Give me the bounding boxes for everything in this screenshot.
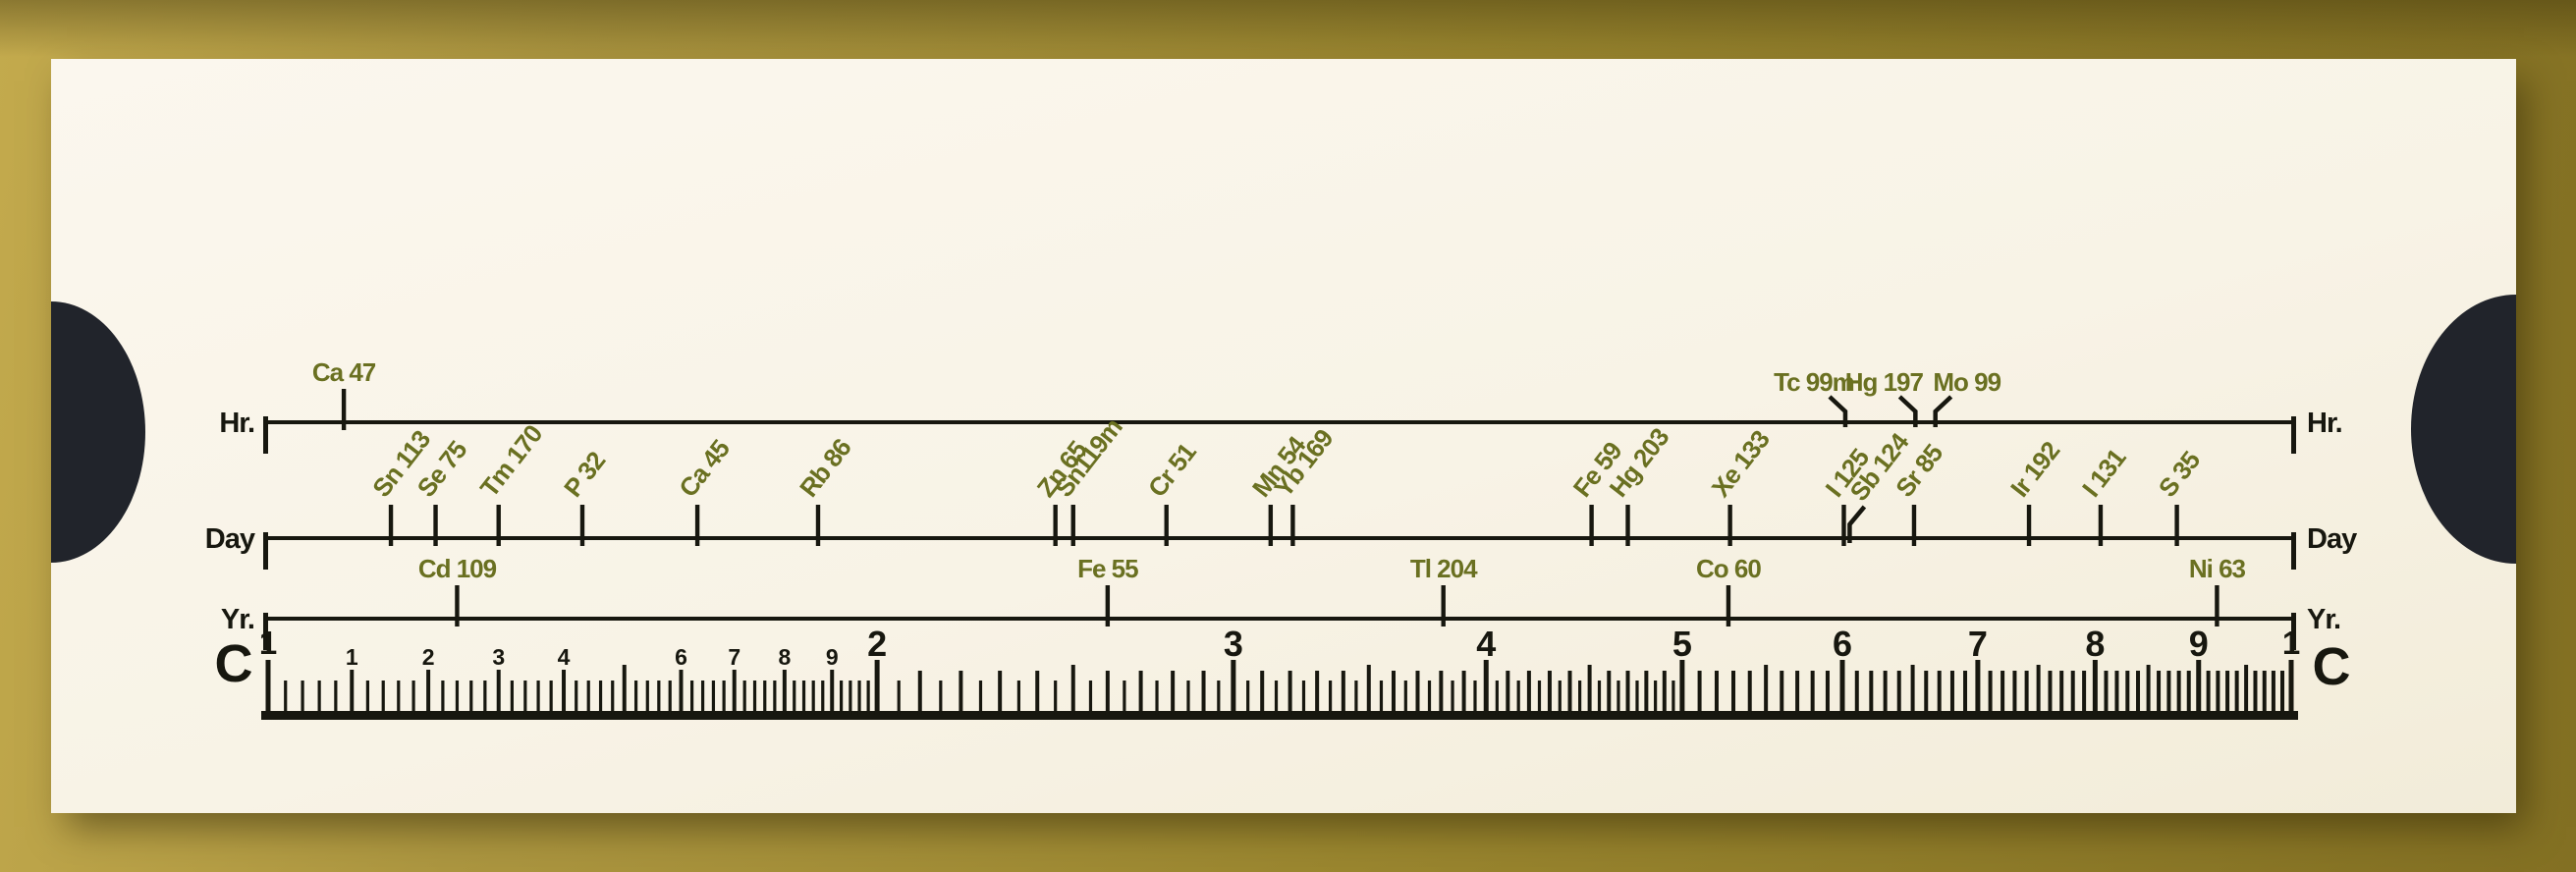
c-scale-tenth-tick [1884,671,1888,715]
c-scale-tenth-tick [2177,671,2181,715]
isotope-marker [455,585,459,627]
isotope-marker [1841,505,1845,546]
c-scale-tenth-tick [1811,671,1815,715]
c-scale-tenth-tick [1855,671,1859,715]
isotope-marker [2174,505,2178,546]
c-scale-minor-tick [812,681,815,715]
isotope-marker [2099,505,2103,546]
c-scale-minor-tick [575,681,577,715]
isotope-label: Fe 55 [1077,554,1138,583]
c-scale-tenth-tick [1506,671,1509,715]
hr-scale-right-end-tick [2291,416,2296,454]
c-scale-tenth-tick [2104,671,2108,715]
c-scale-minor-tick [1635,681,1638,715]
c-scale-tenth-tick [2166,671,2170,715]
isotope-label: Xe 133 [1706,425,1776,503]
c-scale-minor-tick [397,681,400,715]
isotope-marker [1625,505,1629,546]
c-scale-minor-tick [646,681,649,715]
c-scale-tenth-tick [1924,671,1928,715]
c-scale-number: 3 [1224,624,1243,664]
isotope-label: I 131 [2076,443,2131,503]
c-scale-minor-tick [599,681,602,715]
c-scale-half-tick [2244,665,2248,715]
c-scale-tenth-tick [2207,671,2211,715]
c-scale-tenth-tick [1826,671,1830,715]
c-scale-tenth-tick [1663,671,1667,715]
c-scale-minor-tick [366,681,369,715]
day-scale-right-label: Day [2307,523,2357,555]
c-scale-tenth-tick [733,670,737,715]
c-scale-minor-tick [301,681,303,715]
c-scale-tenth-tick [2025,671,2029,715]
c-scale-end-number: 1 [2282,625,2300,661]
c-scale-minor-tick [1217,681,1220,715]
c-scale-tenth-tick [2263,671,2267,715]
c-scale-tenth-tick [2187,671,2191,715]
c-scale-tenth-tick [1342,671,1345,715]
c-scale-minor-tick [1496,681,1499,715]
c-scale-minor-tick [723,681,726,715]
isotope-label: Cd 109 [418,554,497,583]
yr-scale-right-label: Yr. [2307,604,2340,635]
c-scale-minor-tick [712,681,715,715]
c-scale-tenth-tick [1548,671,1552,715]
slide-chart-card: Hr.Hr.Ca 47Tc 99mHg 197Mo 99DayDaySn 113… [51,59,2516,813]
c-scale-minor-tick [523,681,526,715]
c-scale-tenth-tick [1963,671,1967,715]
c-scale-tenth-tick [783,670,787,715]
isotope-label: Ir 192 [2004,436,2065,503]
c-scale-decimal-number: 3 [492,644,505,670]
isotope-marker [1912,505,1916,546]
photo-background: Hr.Hr.Ca 47Tc 99mHg 197Mo 99DayDaySn 113… [0,0,2576,872]
c-scale-tenth-tick [2225,671,2229,715]
c-scale-major-tick [1484,660,1489,715]
isotope-marker [433,505,437,546]
c-scale-decimal-number: 6 [675,644,687,670]
c-scale-minor-tick [456,681,459,715]
c-scale-right-label: C [2313,637,2351,696]
c-scale-major-tick [1975,660,1980,715]
c-scale-minor-tick [536,681,539,715]
day-scale-left-label: Day [205,523,255,555]
c-scale-minor-tick [1123,681,1125,715]
c-scale-tenth-tick [1139,671,1143,715]
c-scale-decimal-number: 8 [778,644,791,670]
c-scale-tenth-tick [1106,671,1110,715]
c-scale-number: 2 [867,624,887,664]
c-scale-tenth-tick [1607,671,1611,715]
isotope-marker [1071,505,1075,546]
c-scale-number: 4 [1476,624,1496,664]
c-scale-minor-tick [753,681,756,715]
c-scale-tenth-tick [2012,671,2016,715]
c-scale-tenth-tick [2082,671,2086,715]
c-scale-tenth-tick [1439,671,1443,715]
c-scale-tenth-tick [1392,671,1396,715]
c-scale-minor-tick [550,681,553,715]
c-scale-tenth-tick [2235,671,2239,715]
c-scale-minor-tick [793,681,795,715]
c-scale-major-tick [1231,660,1235,715]
isotope-marker [1589,505,1593,546]
c-scale-tenth-tick [959,671,962,715]
c-scale-tenth-tick [562,670,566,715]
c-scale-baseline [261,711,2298,720]
c-scale-tenth-tick [2280,671,2284,715]
isotope-label: Ni 63 [2189,554,2246,583]
c-scale-minor-tick [657,681,660,715]
c-scale-number: 6 [1833,624,1852,664]
c-scale-minor-tick [1654,681,1657,715]
scales-face: Hr.Hr.Ca 47Tc 99mHg 197Mo 99DayDaySn 113… [51,59,2516,813]
c-scale-minor-tick [669,681,672,715]
c-scale-minor-tick [1017,681,1020,715]
isotope-marker [2215,585,2219,627]
c-scale-minor-tick [1054,681,1057,715]
c-scale-minor-tick [867,681,870,715]
c-scale-minor-tick [1302,681,1305,715]
c-scale-minor-tick [1155,681,1158,715]
c-scale-tenth-tick [2216,671,2220,715]
hr-scale-line [263,420,2296,424]
c-scale-tenth-tick [1171,671,1175,715]
isotope-marker [1726,585,1730,627]
c-scale-tenth-tick [2253,671,2257,715]
c-scale-tenth-tick [426,670,430,715]
c-scale-minor-tick [469,681,472,715]
c-scale-minor-tick [1578,681,1581,715]
c-scale-half-tick [623,665,627,715]
c-scale-minor-tick [690,681,693,715]
c-scale-major-tick [2289,660,2294,715]
c-scale-number: 9 [2189,624,2209,664]
c-scale-major-tick [875,660,880,715]
c-scale-minor-tick [1617,681,1619,715]
isotope-label: Cr 51 [1142,437,1202,502]
c-scale-major-tick [1679,660,1684,715]
c-scale-major-tick [1839,660,1844,715]
c-scale-tenth-tick [1260,671,1264,715]
isotope-marker [816,505,820,546]
c-scale-tenth-tick [1698,671,1702,715]
c-scale-minor-tick [939,681,942,715]
c-scale-tenth-tick [2125,671,2129,715]
c-scale-major-tick [2196,660,2201,715]
c-scale-tenth-tick [1950,671,1954,715]
c-scale-left-label: C [215,634,253,693]
c-scale-minor-tick [587,681,590,715]
c-scale-half-tick [2147,665,2151,715]
c-scale-minor-tick [1672,681,1674,715]
c-scale-half-tick [1071,665,1075,715]
c-scale-tenth-tick [1715,671,1719,715]
c-scale-tenth-tick [2059,671,2063,715]
c-scale-tenth-tick [1415,671,1419,715]
c-scale-minor-tick [849,681,851,715]
c-scale-tenth-tick [350,670,354,715]
c-scale-minor-tick [511,681,514,715]
c-scale-minor-tick [483,681,486,715]
c-scale-minor-tick [284,681,287,715]
c-scale-decimal-number: 2 [422,644,435,670]
c-scale-tenth-tick [1897,671,1901,715]
c-scale-tenth-tick [1780,671,1783,715]
c-scale-minor-tick [763,681,766,715]
c-scale-tenth-tick [1202,671,1206,715]
c-scale-minor-tick [611,681,614,715]
isotope-marker [695,505,699,546]
isotope-marker [1290,505,1294,546]
isotope-label: Tc 99m [1774,367,1854,397]
c-scale-minor-tick [1538,681,1541,715]
c-scale-tenth-tick [830,670,834,715]
isotope-label: Co 60 [1696,554,1761,583]
day-scale-left-end-tick [263,532,268,570]
c-scale-tenth-tick [918,671,922,715]
yr-scale-left-label: Yr. [221,604,254,635]
c-scale-minor-tick [1186,681,1189,715]
c-scale-minor-tick [773,681,776,715]
c-scale-minor-tick [1598,681,1601,715]
c-scale-minor-tick [1517,681,1520,715]
c-scale-minor-tick [334,681,337,715]
c-scale-half-tick [2037,665,2041,715]
c-scale-minor-tick [1246,681,1249,715]
c-scale-tenth-tick [1644,671,1648,715]
c-scale-minor-tick [1404,681,1407,715]
c-scale-tenth-tick [1527,671,1531,715]
c-scale-minor-tick [1329,681,1332,715]
isotope-marker [1053,505,1057,546]
hr-scale-right-label: Hr. [2307,408,2342,439]
isotope-label: Tm 170 [474,419,548,503]
c-scale-minor-tick [1451,681,1453,715]
c-scale-decimal-number: 4 [558,644,571,670]
c-scale-minor-tick [840,681,843,715]
c-scale-tenth-tick [1731,671,1735,715]
c-scale-end-number: 1 [259,625,277,661]
c-scale-minor-tick [802,681,805,715]
isotope-marker [389,505,393,546]
isotope-label: Tl 204 [1410,554,1478,583]
c-scale-tenth-tick [998,671,1002,715]
c-scale-tenth-tick [1869,671,1873,715]
c-scale-minor-tick [634,681,637,715]
day-scale-right-end-tick [2291,532,2296,570]
c-scale-tenth-tick [2136,671,2140,715]
c-scale-tenth-tick [2001,671,2004,715]
isotope-label: Rb 86 [794,433,856,503]
c-scale-half-tick [1911,665,1915,715]
isotope-label: Hg 197 [1845,367,1924,397]
isotope-marker [2027,505,2031,546]
c-scale-minor-tick [701,681,704,715]
c-scale-tenth-tick [1626,671,1630,715]
c-scale-half-tick [1764,665,1768,715]
isotope-marker [1442,585,1446,627]
c-scale-major-tick [266,660,271,715]
c-scale-minor-tick [411,681,414,715]
c-scale-tenth-tick [1989,671,1993,715]
c-scale-tenth-tick [1568,671,1572,715]
c-scale-minor-tick [441,681,444,715]
c-scale-minor-tick [1089,681,1092,715]
c-scale-tenth-tick [1748,671,1752,715]
c-scale-half-tick [1588,665,1592,715]
c-scale-tenth-tick [1795,671,1799,715]
day-scale-line [263,536,2296,540]
c-scale-tenth-tick [2114,671,2118,715]
c-scale-tenth-tick [2048,671,2052,715]
isotope-marker [1165,505,1169,546]
c-scale-minor-tick [382,681,385,715]
c-scale-major-tick [2093,660,2098,715]
c-scale-minor-tick [898,681,901,715]
c-scale-tenth-tick [1035,671,1039,715]
c-scale-minor-tick [821,681,824,715]
isotope-marker [1106,585,1110,627]
isotope-label: S 35 [2153,446,2206,503]
c-scale-minor-tick [979,681,982,715]
c-scale-minor-tick [318,681,321,715]
c-scale-minor-tick [857,681,860,715]
c-scale-minor-tick [1428,681,1431,715]
isotope-marker [1727,505,1731,546]
c-scale-minor-tick [1559,681,1562,715]
isotope-marker [497,505,501,546]
c-scale-decimal-number: 1 [346,644,358,670]
c-scale-tenth-tick [1315,671,1319,715]
c-scale-minor-tick [1473,681,1476,715]
c-scale-number: 5 [1672,624,1692,664]
isotope-marker [342,389,346,430]
hr-scale-left-label: Hr. [219,408,254,439]
isotope-label: Mo 99 [1933,367,2001,397]
c-scale-tenth-tick [1938,671,1942,715]
c-scale-decimal-number: 9 [826,644,839,670]
hr-scale-left-end-tick [263,416,268,454]
c-scale-minor-tick [1275,681,1278,715]
c-scale-decimal-number: 7 [728,644,740,670]
c-scale-number: 8 [2085,624,2105,664]
c-scale-minor-tick [1380,681,1383,715]
yr-scale-line [263,617,2296,621]
c-scale-half-tick [1367,665,1371,715]
isotope-label: Ca 45 [673,434,736,503]
isotope-label: P 32 [558,446,611,503]
c-scale-tenth-tick [1288,671,1292,715]
c-scale-tenth-tick [2157,671,2161,715]
isotope-label: Ca 47 [312,357,376,387]
c-scale-tenth-tick [679,670,683,715]
c-scale-tenth-tick [2071,671,2075,715]
c-scale-tenth-tick [497,670,501,715]
isotope-marker [580,505,584,546]
c-scale-minor-tick [743,681,746,715]
c-scale-tenth-tick [1462,671,1466,715]
c-scale-number: 7 [1968,624,1988,664]
isotope-marker [1269,505,1273,546]
c-scale-tenth-tick [2272,671,2275,715]
c-scale-minor-tick [1354,681,1357,715]
